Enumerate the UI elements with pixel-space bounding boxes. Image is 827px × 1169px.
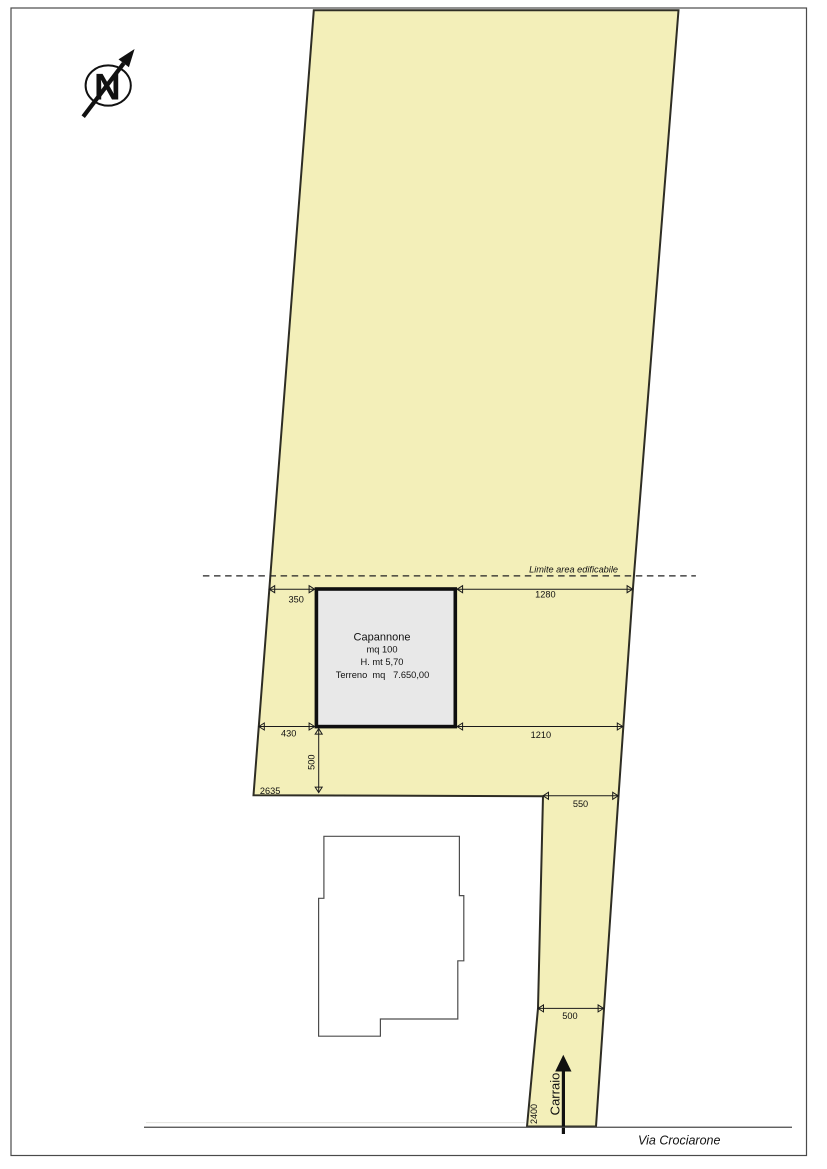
svg-text:2400: 2400 — [529, 1104, 539, 1124]
svg-text:Limite area edificabile: Limite area edificabile — [529, 564, 618, 574]
svg-text:1210: 1210 — [531, 730, 551, 740]
svg-text:Terreno mq 7.650,00: Terreno mq 7.650,00 — [336, 670, 430, 680]
svg-text:Via Crociarone: Via Crociarone — [638, 1134, 721, 1148]
svg-text:2635: 2635 — [260, 786, 280, 796]
svg-text:500: 500 — [307, 755, 317, 770]
svg-text:Carraio: Carraio — [548, 1073, 563, 1116]
svg-text:550: 550 — [573, 799, 588, 809]
svg-text:500: 500 — [562, 1011, 577, 1021]
svg-text:H. mt 5,70: H. mt 5,70 — [361, 657, 404, 667]
svg-text:Capannone: Capannone — [354, 631, 411, 643]
svg-text:430: 430 — [281, 729, 296, 739]
svg-text:1280: 1280 — [535, 589, 555, 599]
svg-text:350: 350 — [289, 594, 304, 604]
svg-text:mq 100: mq 100 — [366, 645, 397, 655]
